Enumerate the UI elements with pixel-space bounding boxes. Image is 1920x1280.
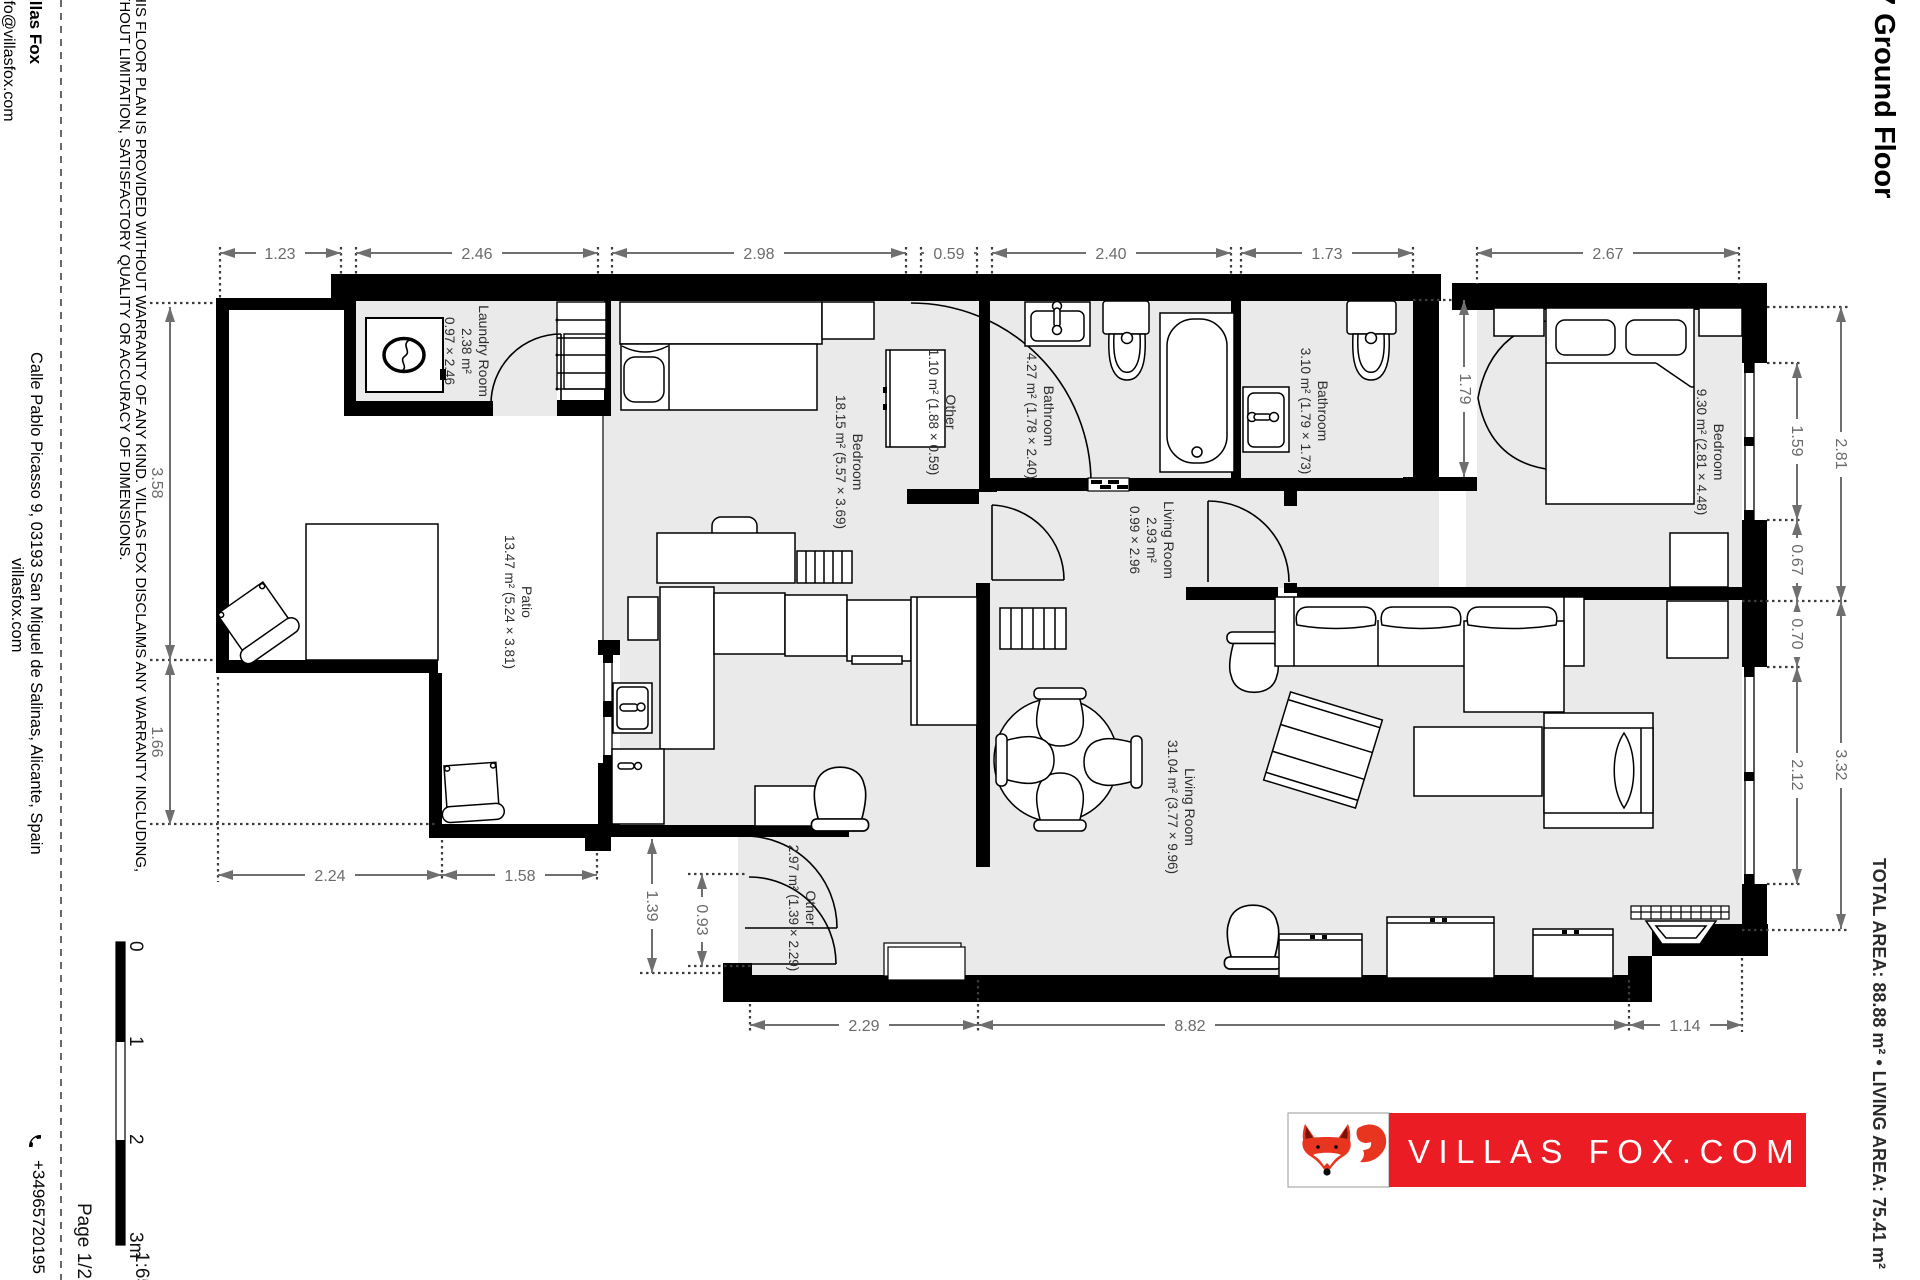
svg-text:Bathroom: Bathroom (1315, 381, 1331, 442)
svg-text:9.30 m² (2.81 × 4.48): 9.30 m² (2.81 × 4.48) (1694, 389, 1709, 515)
svg-text:2.38 m²: 2.38 m² (459, 328, 474, 374)
svg-text:2.24: 2.24 (314, 868, 345, 885)
svg-text:31.04 m² (3.77 × 9.96): 31.04 m² (3.77 × 9.96) (1165, 740, 1180, 874)
svg-text:18.15 m² (5.57 × 3.69): 18.15 m² (5.57 × 3.69) (833, 395, 848, 529)
svg-text:0.93: 0.93 (693, 904, 710, 935)
svg-text:7 Ground Floor: 7 Ground Floor (1868, 0, 1900, 198)
svg-text:2.81: 2.81 (1832, 438, 1849, 469)
svg-text:0.97 × 2.46: 0.97 × 2.46 (442, 317, 457, 385)
svg-text:ITHOUT LIMITATION, SATISFACTOR: ITHOUT LIMITATION, SATISFACTORY QUALITY … (116, 0, 133, 561)
svg-text:Patio: Patio (519, 586, 535, 618)
svg-text:1: 1 (125, 1036, 146, 1047)
svg-text:2.46: 2.46 (461, 246, 492, 263)
svg-text:3.32: 3.32 (1832, 749, 1849, 780)
svg-text:Other: Other (803, 890, 819, 925)
svg-text:1.79: 1.79 (1456, 373, 1473, 404)
svg-text:+34965720195: +34965720195 (29, 1160, 48, 1274)
svg-text:Villas Fox: Villas Fox (26, 0, 45, 65)
svg-text:2.12: 2.12 (1788, 759, 1805, 790)
svg-text:2.98: 2.98 (743, 246, 774, 263)
svg-text:2.97 m² (1.39 × 2.29): 2.97 m² (1.39 × 2.29) (786, 845, 801, 971)
svg-text:Calle Pablo Picasso 9, 03193 S: Calle Pablo Picasso 9, 03193 San Miguel … (27, 352, 45, 855)
svg-text:0.70: 0.70 (1788, 618, 1805, 649)
svg-text:0.99 × 2.96: 0.99 × 2.96 (1127, 506, 1142, 574)
svg-text:1.58: 1.58 (504, 868, 535, 885)
svg-text:info@villasfox.com: info@villasfox.com (0, 0, 17, 122)
svg-text:1.73: 1.73 (1311, 246, 1342, 263)
svg-text:Bedroom: Bedroom (1711, 424, 1727, 481)
svg-text:Laundry Room: Laundry Room (476, 305, 492, 397)
svg-text:Living Room: Living Room (1161, 501, 1177, 579)
svg-text:1.39: 1.39 (643, 890, 660, 921)
svg-text:1.10 m² (1.88 × 0.59): 1.10 m² (1.88 × 0.59) (926, 349, 941, 475)
svg-text:2.40: 2.40 (1095, 246, 1126, 263)
svg-text:1:65: 1:65 (131, 1252, 152, 1280)
svg-text:0.59: 0.59 (933, 246, 964, 263)
svg-text:1.14: 1.14 (1669, 1018, 1700, 1035)
svg-text:0.67: 0.67 (1788, 544, 1805, 575)
svg-text:0: 0 (125, 941, 146, 952)
svg-text:3.58: 3.58 (148, 467, 165, 498)
svg-text:2.29: 2.29 (848, 1018, 879, 1035)
svg-text:Bedroom: Bedroom (850, 434, 866, 491)
svg-text:Other: Other (943, 394, 959, 429)
svg-text:4.27 m² (1.78 × 2.40): 4.27 m² (1.78 × 2.40) (1024, 353, 1039, 479)
svg-text:1.66: 1.66 (148, 726, 165, 757)
svg-text:VILLAS FOX.COM: VILLAS FOX.COM (1408, 1133, 1802, 1170)
svg-text:2: 2 (125, 1134, 146, 1145)
svg-text:1.59: 1.59 (1788, 425, 1805, 456)
svg-text:villasfox.com: villasfox.com (8, 558, 26, 652)
svg-text:Page 1/2: Page 1/2 (73, 1203, 94, 1279)
svg-text:1.23: 1.23 (264, 246, 295, 263)
svg-text:Living Room: Living Room (1182, 768, 1198, 846)
svg-text:HIS FLOOR PLAN IS PROVIDED WIT: HIS FLOOR PLAN IS PROVIDED WITHOUT WARRA… (132, 0, 149, 872)
svg-text:8.82: 8.82 (1174, 1018, 1205, 1035)
svg-text:2.67: 2.67 (1592, 246, 1623, 263)
svg-text:13.47 m² (5.24 × 3.81): 13.47 m² (5.24 × 3.81) (502, 535, 517, 669)
svg-text:Bathroom: Bathroom (1041, 386, 1057, 447)
svg-text:TOTAL AREA: 88.88 m² • LIVING: TOTAL AREA: 88.88 m² • LIVING AREA: 75.4… (1869, 858, 1889, 1269)
svg-text:3.10 m² (1.79 × 1.73): 3.10 m² (1.79 × 1.73) (1298, 348, 1313, 474)
svg-text:2.93 m²: 2.93 m² (1144, 517, 1159, 563)
